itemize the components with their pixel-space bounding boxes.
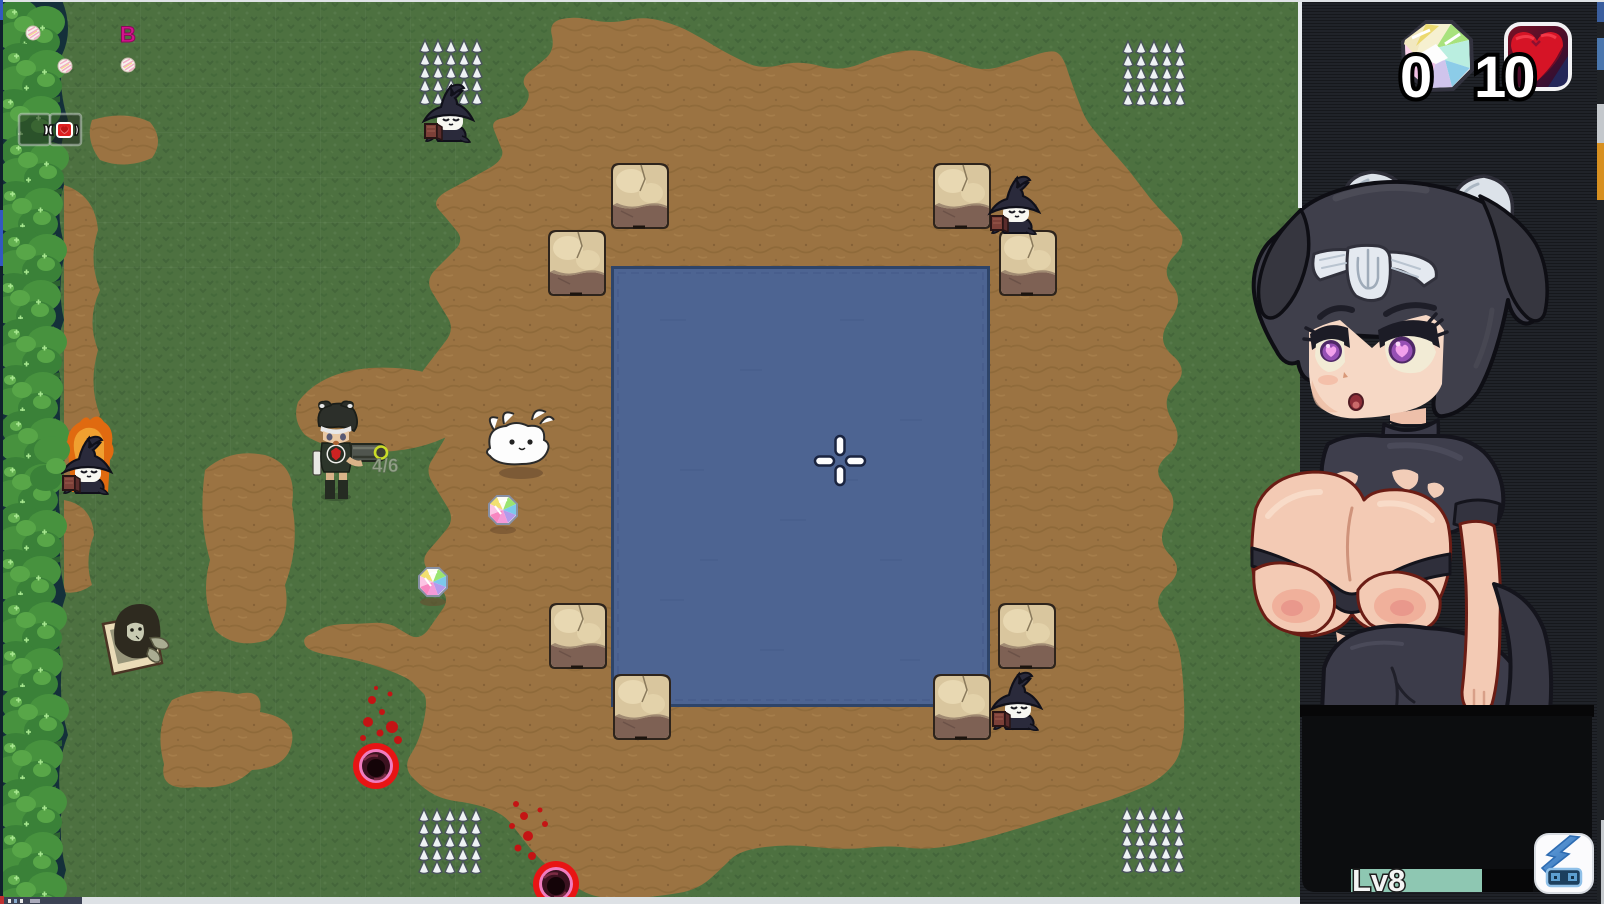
svg-text:B: B [120,22,136,47]
svg-text:0: 0 [1400,45,1432,110]
svg-text:Lv8: Lv8 [1352,863,1405,898]
svg-text:4/6: 4/6 [372,456,398,477]
svg-text:10: 10 [1474,45,1533,110]
